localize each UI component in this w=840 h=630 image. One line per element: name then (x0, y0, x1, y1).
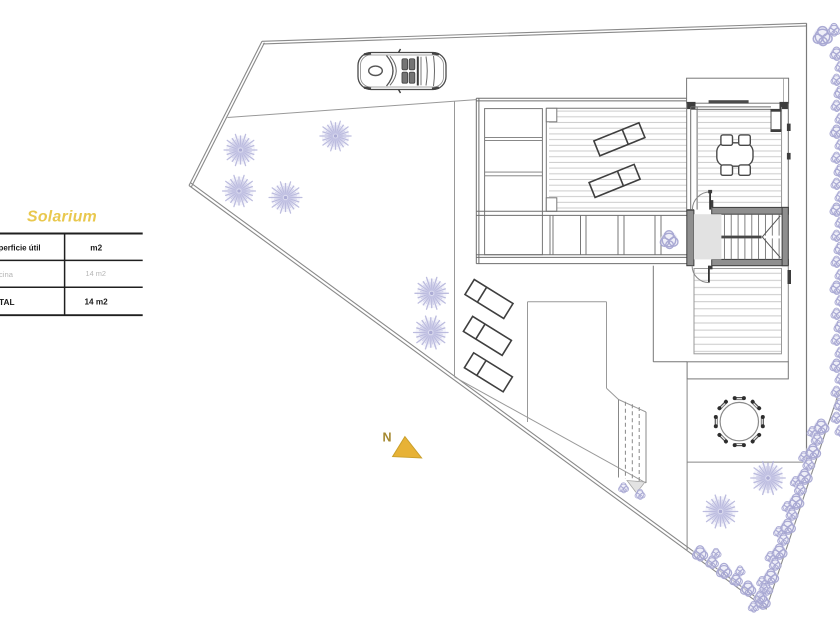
svg-text:N: N (383, 431, 392, 445)
svg-text:TAL: TAL (0, 297, 15, 307)
svg-text:m2: m2 (90, 243, 102, 252)
svg-text:Solarium: Solarium (27, 209, 97, 226)
svg-text:perficie útil: perficie útil (0, 243, 41, 252)
svg-text:14 m2: 14 m2 (86, 269, 107, 278)
svg-text:cina: cina (0, 270, 14, 279)
svg-text:14 m2: 14 m2 (85, 298, 109, 307)
